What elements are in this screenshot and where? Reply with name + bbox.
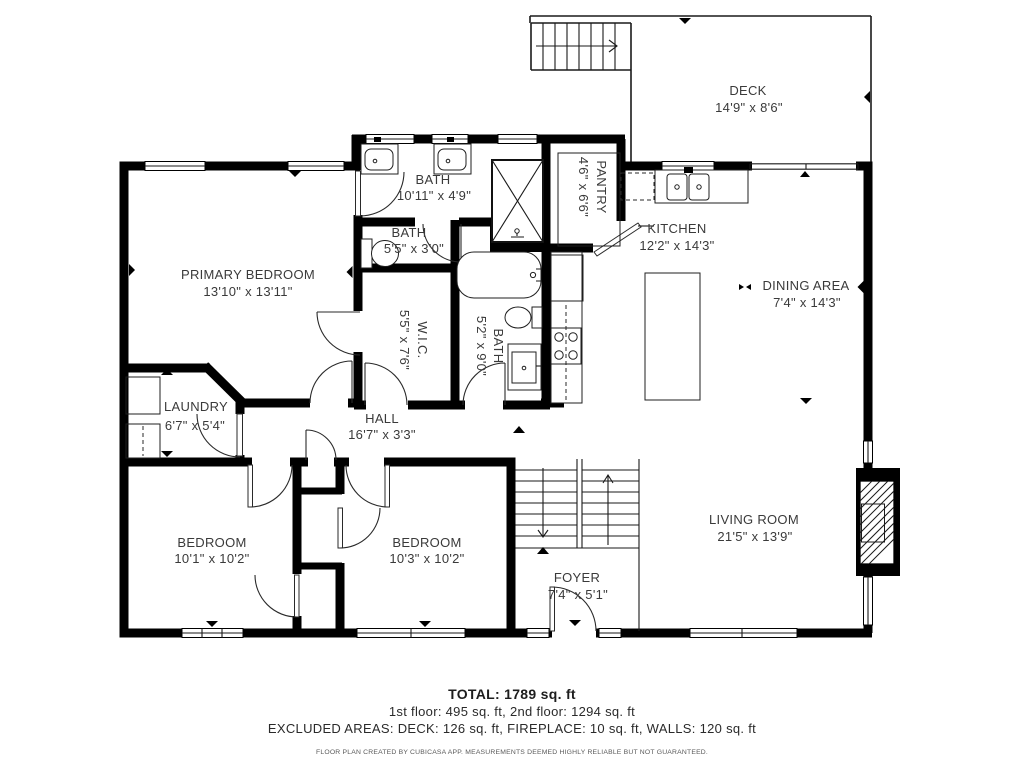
room-label-foyer: FOYER <box>554 570 600 585</box>
room-dims-pantry: 4'6" x 6'6" <box>576 157 591 217</box>
washer-icon <box>126 377 160 414</box>
marker-icon <box>679 18 691 24</box>
room-label-dining: DINING AREA <box>762 278 849 293</box>
room-label-bedroom-left: BEDROOM <box>177 535 246 550</box>
marker-icon <box>800 398 812 404</box>
room-dims-deck: 14'9" x 8'6" <box>715 100 783 115</box>
marker-icon <box>739 284 744 290</box>
shower-icon <box>492 160 543 242</box>
marker-icon <box>800 171 810 177</box>
marker-icon <box>419 621 431 627</box>
kitchen-island-icon <box>645 273 700 400</box>
room-dims-bath-hall: 5'2" x 9'0" <box>474 316 489 376</box>
marker-icon <box>513 426 525 433</box>
marker-icon <box>347 266 353 278</box>
room-dims-living: 21'5" x 13'9" <box>717 529 792 544</box>
disclaimer-text: FLOOR PLAN CREATED BY CUBICASA APP. MEAS… <box>316 749 708 756</box>
sliding-door-icon <box>750 164 858 169</box>
room-label-pantry: PANTRY <box>594 160 609 213</box>
bathtub-icon <box>457 252 542 298</box>
marker-icon <box>289 171 301 177</box>
dryer-icon <box>126 424 160 458</box>
floor-plan-svg: DECK 14'9" x 8'6" BATH 10'11" x 4'9" PAN… <box>0 0 1024 768</box>
floor-plan-page: DECK 14'9" x 8'6" BATH 10'11" x 4'9" PAN… <box>0 0 1024 768</box>
summary-block: TOTAL: 1789 sq. ft 1st floor: 495 sq. ft… <box>268 686 756 756</box>
room-label-bath-small: BATH <box>392 225 427 240</box>
room-label-laundry: LAUNDRY <box>164 399 228 414</box>
marker-icon <box>129 264 135 276</box>
marker-icon <box>161 451 173 457</box>
marker-icon <box>569 620 581 626</box>
room-label-deck: DECK <box>729 83 766 98</box>
marker-icon <box>746 284 751 290</box>
room-dims-bath-small: 5'5" x 3'0" <box>384 241 444 256</box>
room-label-bath-main: BATH <box>416 172 451 187</box>
room-dims-primary-bedroom: 13'10" x 13'11" <box>203 284 292 299</box>
room-label-bath-hall: BATH <box>491 329 506 364</box>
room-label-primary-bedroom: PRIMARY BEDROOM <box>181 267 315 282</box>
toilet-icon <box>505 307 542 328</box>
room-dims-foyer: 7'4" x 5'1" <box>548 587 608 602</box>
room-dims-hall: 16'7" x 3'3" <box>348 427 416 442</box>
stairs-icon <box>516 459 640 631</box>
room-label-kitchen: KITCHEN <box>647 221 706 236</box>
room-dims-wic: 5'5" x 7'6" <box>397 310 412 370</box>
room-dims-bath-main: 10'11" x 4'9" <box>397 188 471 203</box>
room-dims-laundry: 6'7" x 5'4" <box>165 418 225 433</box>
marker-icon <box>864 91 870 103</box>
room-label-wic: W.I.C. <box>415 321 430 358</box>
room-dims-bedroom-right: 10'3" x 10'2" <box>389 551 464 566</box>
deck-stairs-icon <box>531 23 631 70</box>
total-area-text: TOTAL: 1789 sq. ft <box>448 686 576 702</box>
room-dims-kitchen: 12'2" x 14'3" <box>639 238 714 253</box>
room-dims-bedroom-left: 10'1" x 10'2" <box>174 551 249 566</box>
sink-icon <box>508 344 541 390</box>
excluded-areas-text: EXCLUDED AREAS: DECK: 126 sq. ft, FIREPL… <box>268 721 756 736</box>
fireplace-icon <box>778 468 958 576</box>
room-label-hall: HALL <box>365 411 399 426</box>
room-label-bedroom-right: BEDROOM <box>392 535 461 550</box>
floor-areas-text: 1st floor: 495 sq. ft, 2nd floor: 1294 s… <box>389 704 635 719</box>
marker-icon <box>858 281 864 293</box>
marker-icon <box>206 621 218 627</box>
room-label-living: LIVING ROOM <box>709 512 799 527</box>
room-dims-dining: 7'4" x 14'3" <box>773 295 841 310</box>
